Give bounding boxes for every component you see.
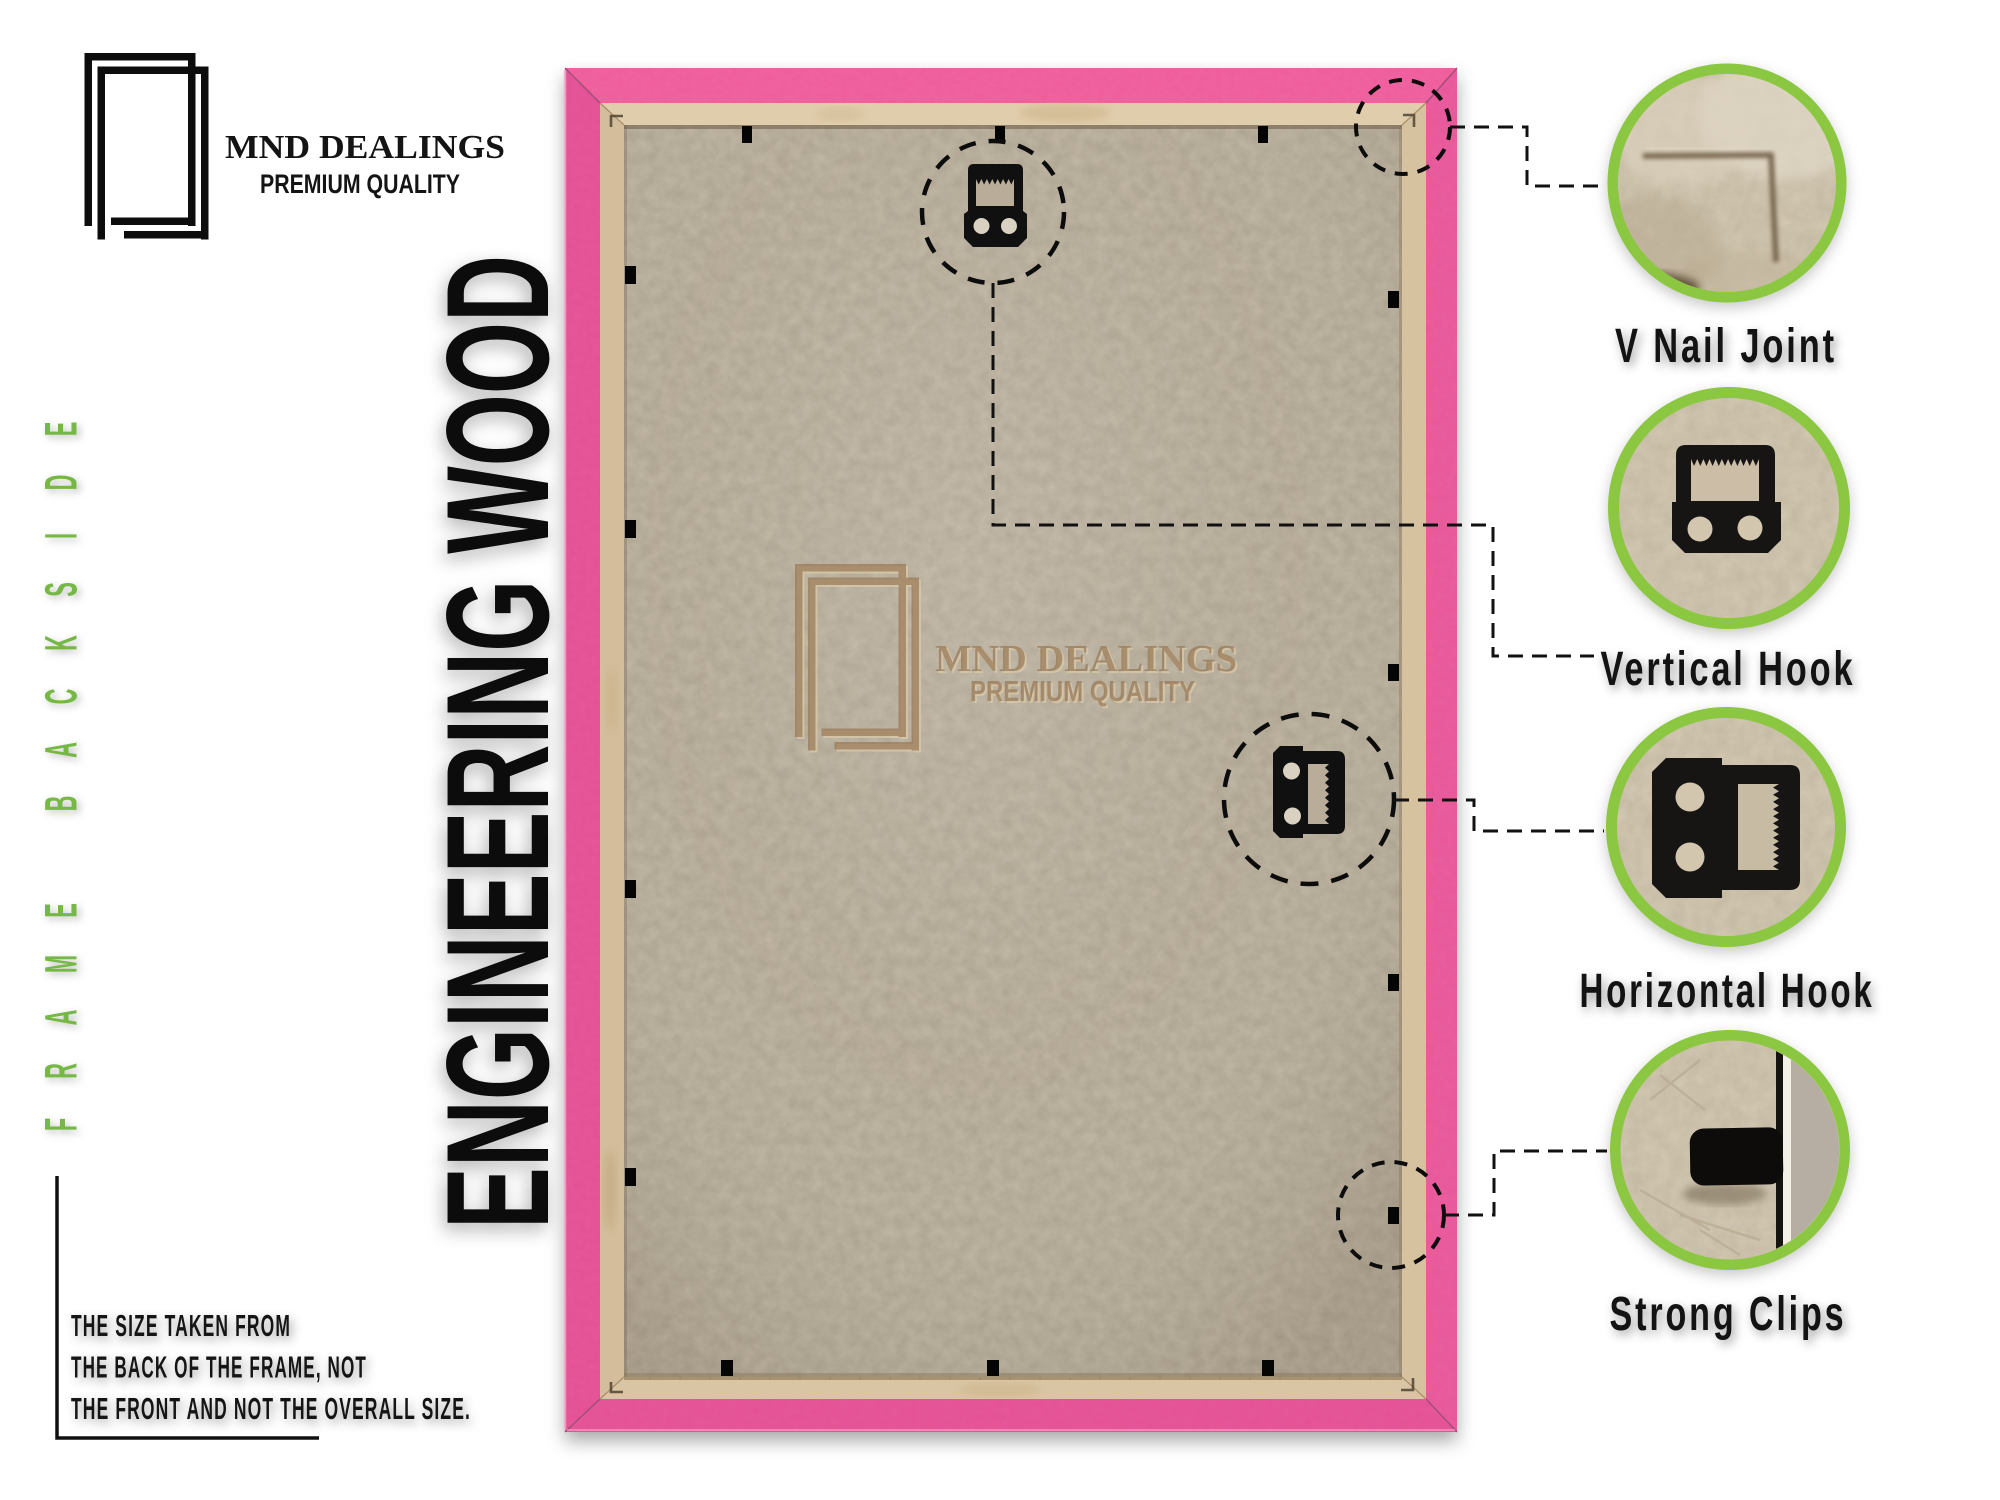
svg-text:PREMIUM QUALITY: PREMIUM QUALITY — [970, 676, 1195, 708]
svg-text:R: R — [36, 1063, 87, 1079]
svg-text:S: S — [36, 582, 87, 597]
svg-text:THE FRONT AND NOT THE OVERALL: THE FRONT AND NOT THE OVERALL SIZE. — [71, 1391, 471, 1426]
svg-text:MND DEALINGS: MND DEALINGS — [935, 638, 1237, 680]
svg-text:Vertical Hook: Vertical Hook — [1601, 643, 1856, 696]
svg-text:A: A — [36, 742, 87, 758]
svg-text:F: F — [36, 1118, 87, 1131]
svg-text:ENGINEERING WOOD: ENGINEERING WOOD — [416, 255, 579, 1229]
svg-text:M: M — [36, 955, 87, 973]
svg-text:C: C — [36, 689, 87, 705]
svg-text:Horizontal Hook: Horizontal Hook — [1580, 965, 1875, 1018]
svg-text:THE BACK OF THE FRAME, NOT: THE BACK OF THE FRAME, NOT — [71, 1350, 367, 1385]
svg-text:E: E — [36, 422, 87, 437]
svg-text:Strong Clips: Strong Clips — [1610, 1288, 1847, 1341]
svg-text:V Nail Joint: V Nail Joint — [1615, 320, 1837, 373]
svg-text:K: K — [36, 635, 87, 651]
svg-text:I: I — [36, 533, 87, 539]
svg-text:A: A — [36, 1010, 87, 1026]
svg-text:B: B — [36, 796, 87, 812]
svg-text:E: E — [36, 903, 87, 918]
svg-text:D: D — [36, 475, 87, 491]
svg-text:THE SIZE TAKEN FROM: THE SIZE TAKEN FROM — [71, 1308, 291, 1343]
svg-text:PREMIUM QUALITY: PREMIUM QUALITY — [260, 169, 460, 199]
svg-text:MND DEALINGS: MND DEALINGS — [225, 129, 505, 166]
